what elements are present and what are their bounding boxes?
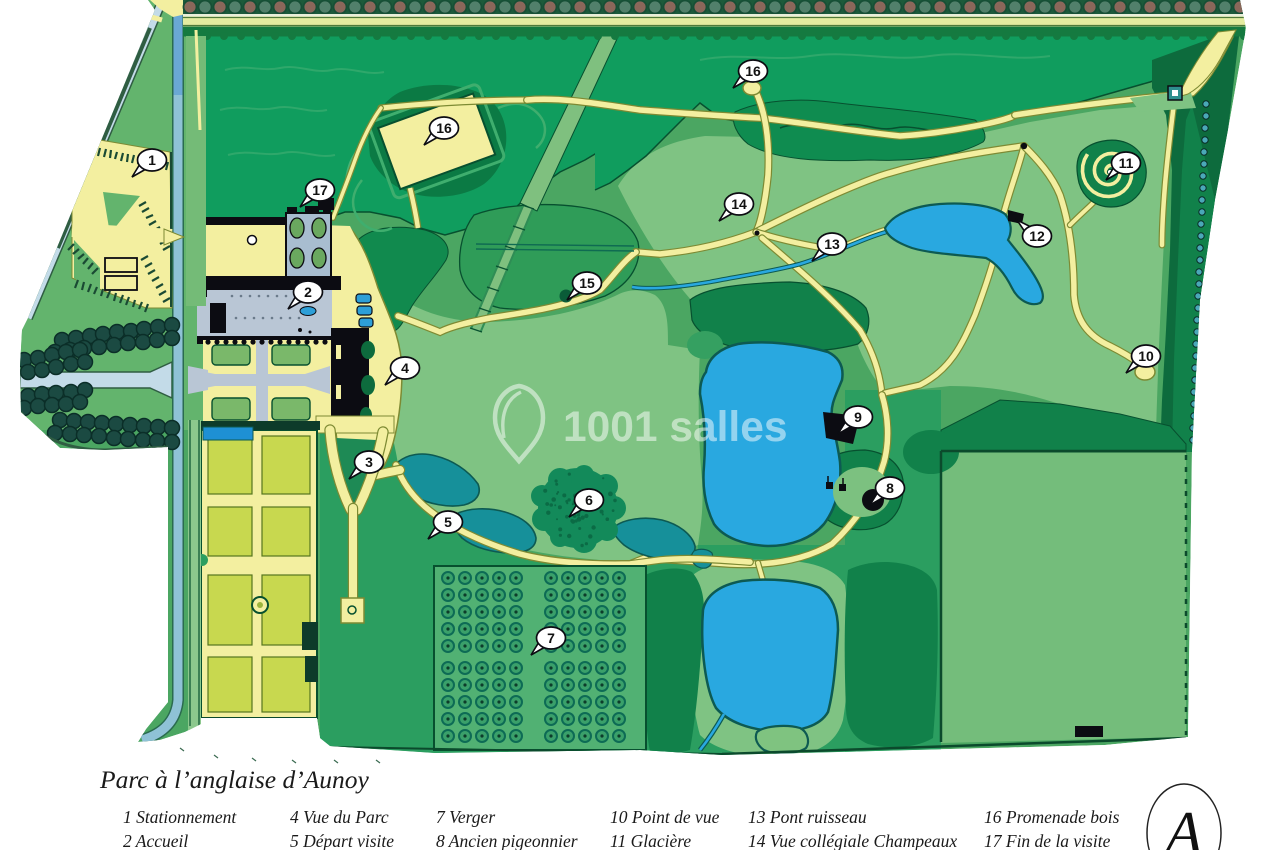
svg-text:5: 5 [444, 514, 452, 530]
svg-text:14: 14 [731, 196, 747, 212]
svg-text:3: 3 [365, 454, 373, 470]
svg-text:2: 2 [304, 284, 312, 300]
svg-text:4 Vue du Parc: 4 Vue du Parc [290, 807, 389, 827]
svg-text:11: 11 [1119, 155, 1134, 171]
svg-text:16: 16 [745, 63, 761, 79]
svg-text:4: 4 [401, 360, 409, 376]
svg-text:7 Verger: 7 Verger [436, 807, 495, 827]
svg-text:14 Vue collégiale Champeaux: 14 Vue collégiale Champeaux [748, 831, 957, 850]
svg-text:1 Stationnement: 1 Stationnement [123, 807, 237, 827]
svg-text:9: 9 [854, 409, 862, 425]
svg-text:10: 10 [1138, 348, 1154, 364]
svg-text:13: 13 [824, 236, 840, 252]
svg-text:7: 7 [547, 630, 555, 646]
svg-text:10 Point de vue: 10 Point de vue [610, 807, 720, 827]
svg-text:16 Promenade bois: 16 Promenade bois [984, 807, 1120, 827]
svg-text:Parc à l’anglaise d’Aunoy: Parc à l’anglaise d’Aunoy [99, 765, 370, 794]
svg-text:8 Ancien pigeonnier: 8 Ancien pigeonnier [436, 831, 578, 850]
svg-text:2 Accueil: 2 Accueil [123, 831, 188, 850]
svg-text:17 Fin de la visite: 17 Fin de la visite [984, 831, 1111, 850]
svg-text:16: 16 [436, 120, 452, 136]
svg-text:A: A [1162, 800, 1203, 850]
svg-text:1001 salles: 1001 salles [563, 404, 788, 451]
svg-text:12: 12 [1029, 228, 1045, 244]
svg-text:6: 6 [585, 492, 593, 508]
svg-text:1: 1 [148, 152, 156, 168]
svg-text:15: 15 [579, 275, 595, 291]
svg-text:8: 8 [886, 480, 894, 496]
svg-text:17: 17 [312, 182, 328, 198]
svg-text:13 Pont ruisseau: 13 Pont ruisseau [748, 807, 867, 827]
svg-text:5 Départ visite: 5 Départ visite [290, 831, 394, 850]
svg-text:11 Glacière: 11 Glacière [610, 831, 691, 850]
